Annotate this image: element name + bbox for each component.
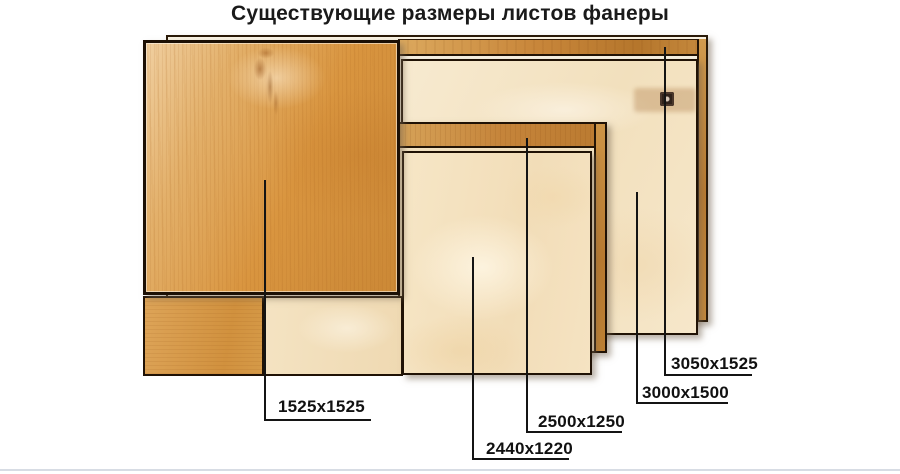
sheet-2500-right-edge bbox=[594, 124, 605, 351]
leader-1525-vline bbox=[264, 180, 266, 421]
sheet-3050-right-edge bbox=[697, 39, 706, 320]
leader-3050-vline bbox=[664, 47, 666, 376]
leader-2500-vline bbox=[526, 138, 528, 433]
plywood-sheet-1525x1525 bbox=[143, 40, 400, 295]
sheet-fragment-dark bbox=[143, 296, 264, 376]
leader-3000-vline bbox=[636, 192, 638, 404]
page-title: Существующие размеры листов фанеры bbox=[0, 2, 900, 26]
leader-3050-hline bbox=[664, 374, 752, 376]
size-label-2440: 2440x1220 bbox=[486, 439, 573, 459]
wood-knot bbox=[246, 43, 292, 125]
sheet-fragment-light bbox=[264, 296, 403, 376]
footer-divider bbox=[0, 469, 900, 471]
leader-1525-hline bbox=[264, 419, 371, 421]
plywood-sizes-diagram: Существующие размеры листов фанеры 1525x… bbox=[0, 0, 900, 474]
size-label-2500: 2500x1250 bbox=[538, 412, 625, 432]
leader-2440-vline bbox=[472, 257, 474, 460]
sheet-3050-top-edge bbox=[398, 39, 706, 56]
size-label-3050: 3050x1525 bbox=[671, 354, 758, 374]
wood-stamp-icon bbox=[660, 92, 674, 106]
size-label-3000: 3000x1500 bbox=[642, 383, 729, 403]
plywood-sheet-2440x1220 bbox=[402, 151, 592, 375]
size-label-1525: 1525x1525 bbox=[278, 397, 365, 417]
sheet-2500-top-edge bbox=[400, 124, 605, 148]
